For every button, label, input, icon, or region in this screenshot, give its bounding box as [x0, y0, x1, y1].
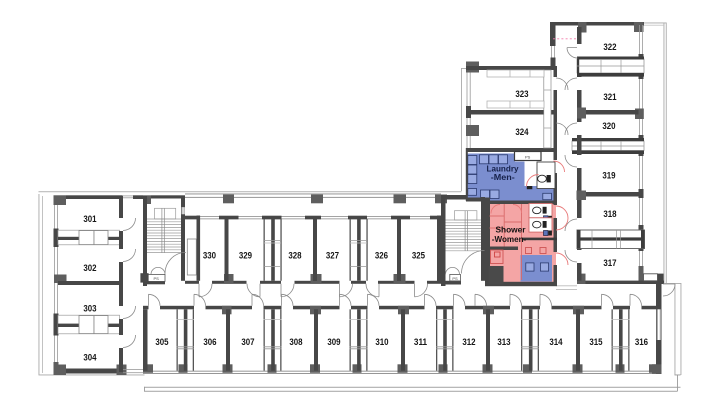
svg-text:318: 318: [603, 209, 616, 219]
svg-text:311: 311: [414, 337, 427, 347]
svg-text:320: 320: [602, 121, 615, 131]
svg-text:313: 313: [497, 337, 510, 347]
svg-text:329: 329: [239, 251, 252, 261]
svg-text:327: 327: [326, 251, 339, 261]
svg-text:321: 321: [603, 92, 616, 102]
svg-text:310: 310: [375, 337, 388, 347]
svg-text:308: 308: [289, 337, 302, 347]
svg-text:PS: PS: [154, 276, 160, 281]
svg-text:306: 306: [203, 337, 216, 347]
svg-text:315: 315: [589, 337, 602, 347]
svg-text:319: 319: [602, 171, 615, 181]
svg-text:324: 324: [515, 127, 529, 137]
svg-text:326: 326: [375, 251, 388, 261]
svg-text:309: 309: [327, 337, 340, 347]
svg-text:316: 316: [635, 337, 648, 347]
svg-text:305: 305: [155, 337, 168, 347]
svg-text:302: 302: [83, 263, 96, 273]
svg-text:307: 307: [241, 337, 254, 347]
svg-text:328: 328: [288, 251, 301, 261]
svg-text:323: 323: [515, 89, 528, 99]
svg-text:PS: PS: [452, 276, 458, 281]
svg-text:-Women-: -Women-: [492, 234, 527, 244]
svg-text:312: 312: [462, 337, 475, 347]
svg-text:303: 303: [83, 304, 96, 314]
svg-text:PS: PS: [525, 155, 531, 160]
svg-text:317: 317: [603, 258, 616, 268]
svg-text:314: 314: [549, 337, 563, 347]
svg-text:325: 325: [412, 251, 425, 261]
svg-text:322: 322: [603, 42, 616, 52]
svg-text:304: 304: [83, 353, 97, 363]
svg-text:-Men-: -Men-: [491, 172, 515, 182]
svg-text:301: 301: [83, 214, 96, 224]
svg-text:330: 330: [203, 251, 216, 261]
